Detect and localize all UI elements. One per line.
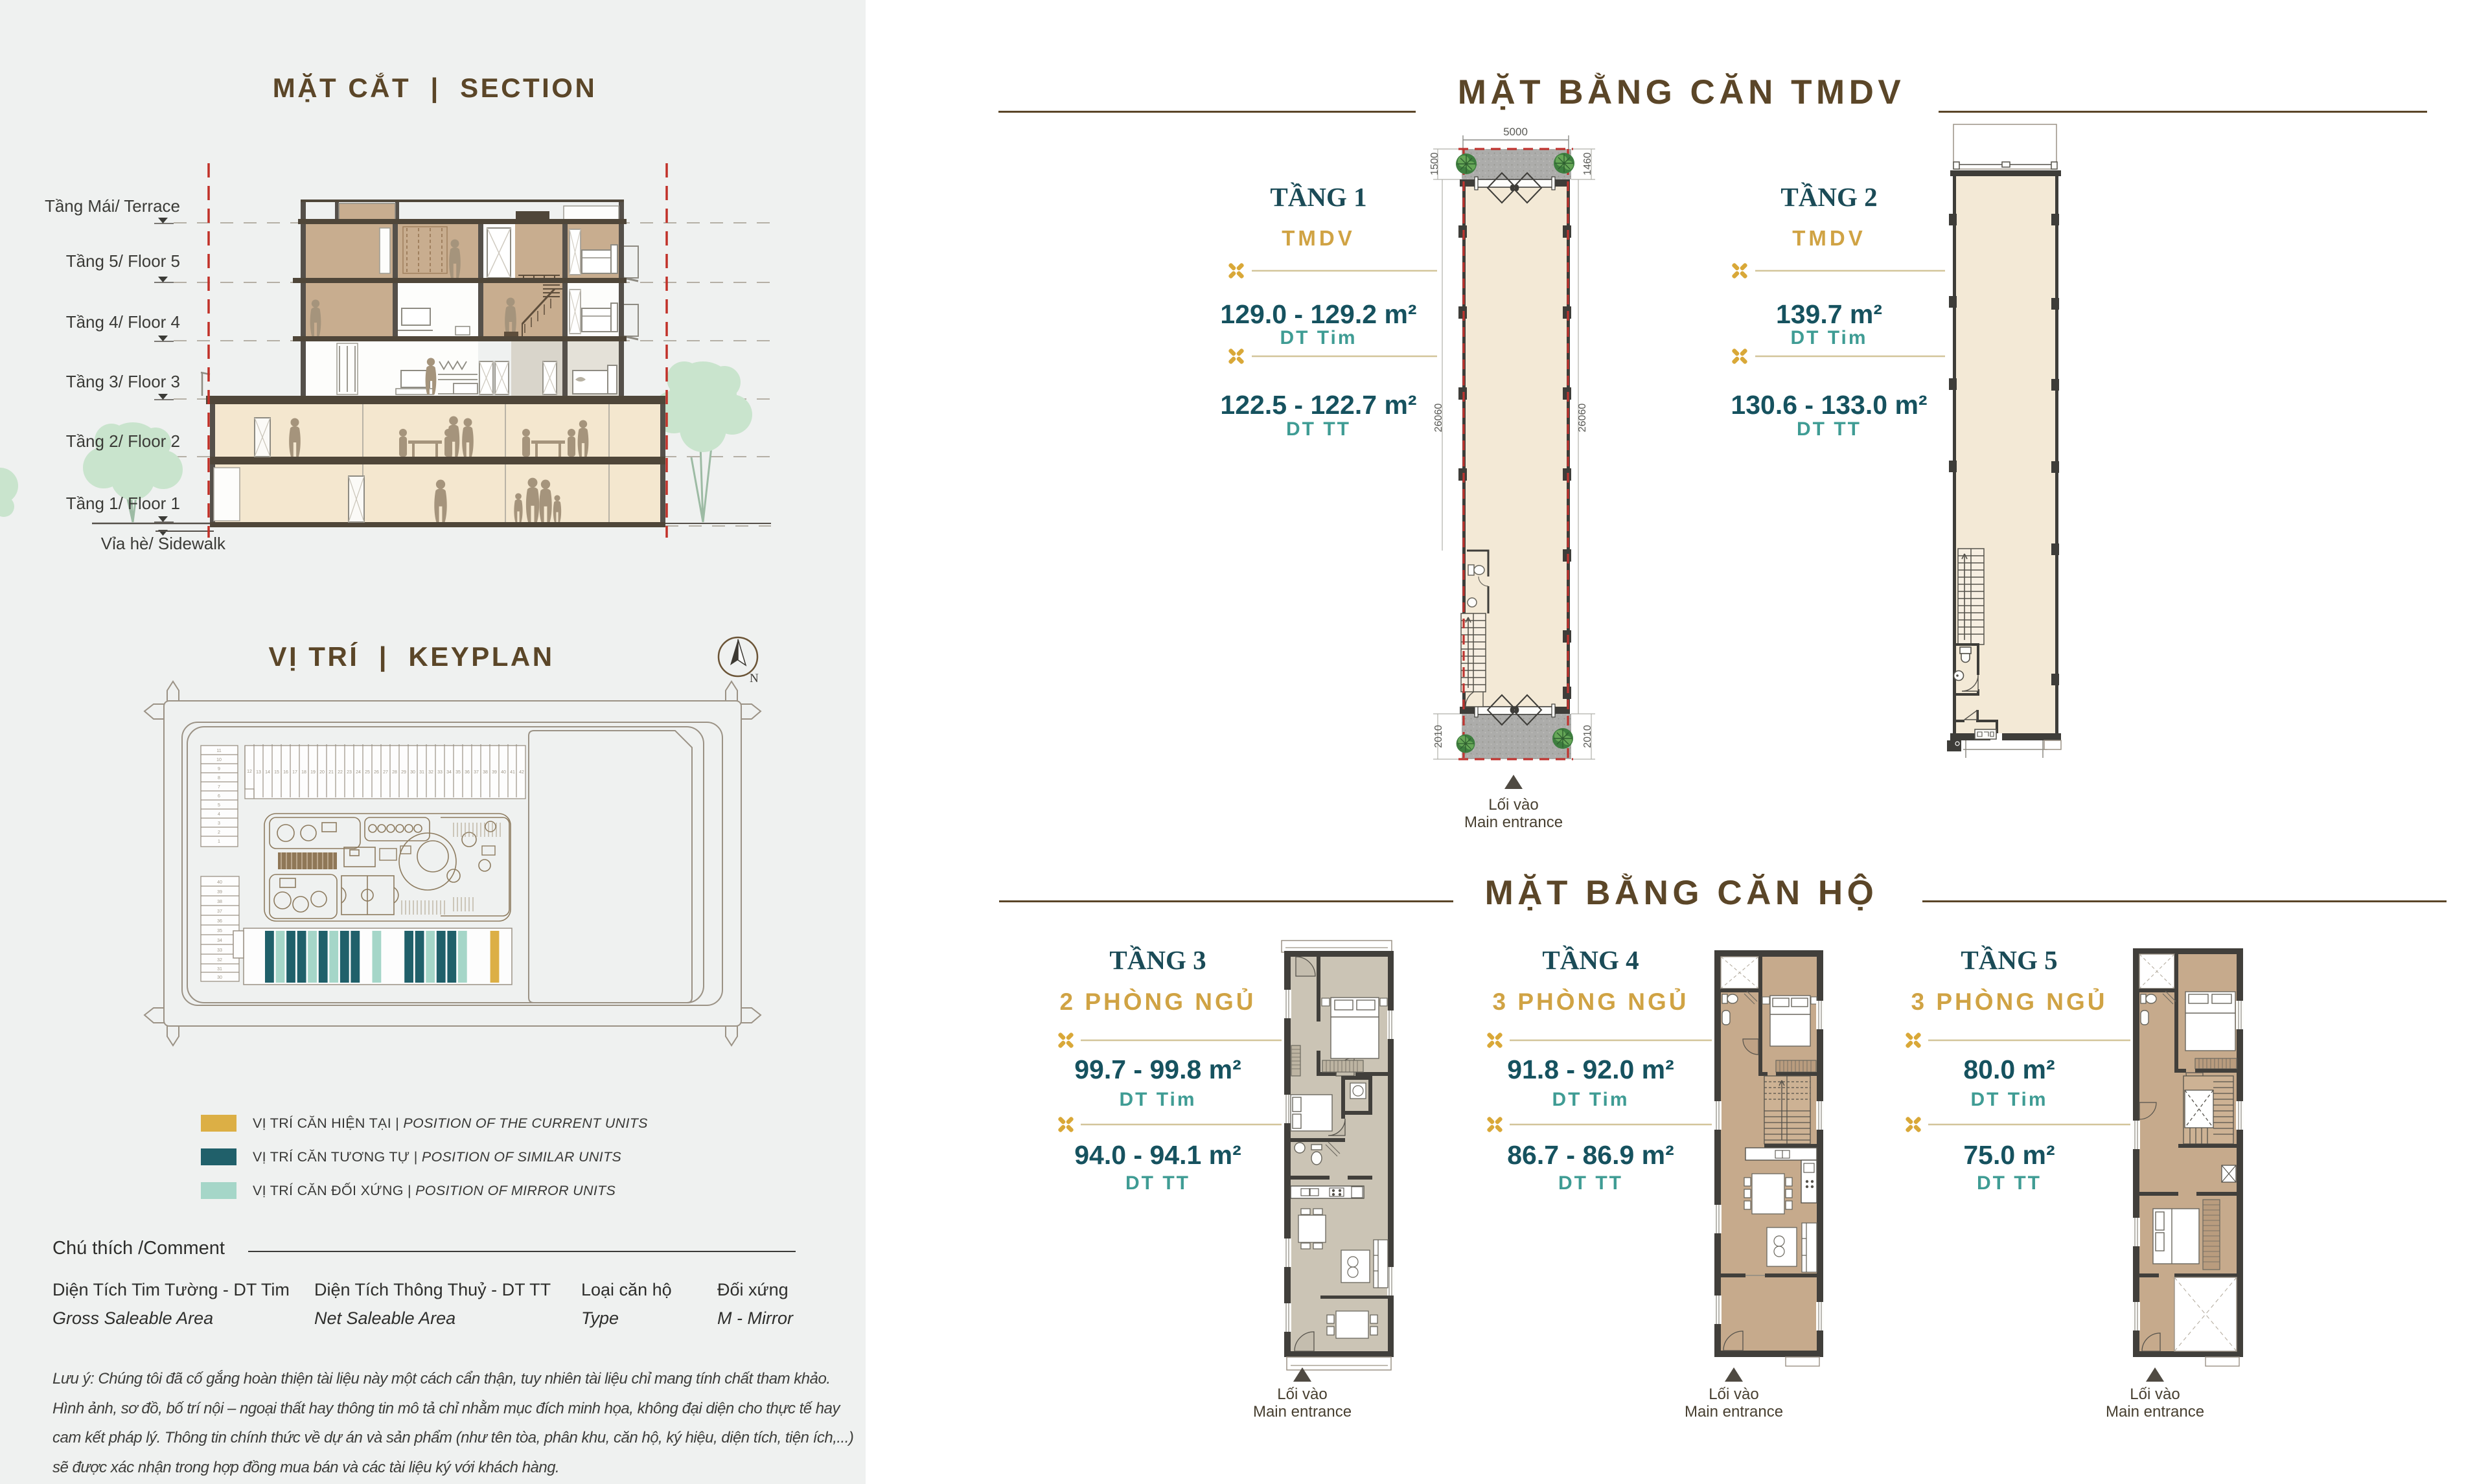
svg-text:38: 38: [217, 900, 222, 904]
svg-text:10: 10: [216, 758, 222, 762]
svg-text:8: 8: [218, 776, 220, 781]
svg-text:6: 6: [218, 794, 220, 799]
svg-text:30: 30: [410, 770, 415, 775]
svg-text:40: 40: [501, 770, 506, 775]
svg-text:16: 16: [283, 770, 288, 775]
svg-text:2010: 2010: [1582, 725, 1593, 748]
svg-text:32: 32: [428, 770, 433, 775]
svg-text:23: 23: [347, 770, 352, 775]
svg-text:11: 11: [216, 749, 221, 753]
svg-text:22: 22: [338, 770, 343, 775]
svg-text:39: 39: [492, 770, 497, 775]
svg-text:14: 14: [265, 770, 270, 775]
svg-text:9: 9: [218, 767, 220, 771]
svg-text:30: 30: [217, 976, 222, 980]
svg-text:36: 36: [217, 919, 222, 924]
svg-text:33: 33: [437, 770, 443, 775]
svg-text:1: 1: [218, 839, 220, 844]
svg-text:33: 33: [217, 948, 222, 953]
svg-text:29: 29: [401, 770, 406, 775]
svg-text:26: 26: [374, 770, 379, 775]
svg-text:38: 38: [483, 770, 488, 775]
svg-text:5000: 5000: [1503, 126, 1528, 138]
svg-text:1460: 1460: [1582, 152, 1593, 176]
svg-text:2010: 2010: [1433, 725, 1444, 748]
svg-text:20: 20: [319, 770, 325, 775]
svg-text:5: 5: [218, 803, 220, 808]
svg-text:37: 37: [217, 909, 222, 914]
svg-text:12: 12: [247, 770, 252, 774]
svg-text:40: 40: [217, 880, 222, 885]
svg-text:7: 7: [218, 785, 220, 790]
svg-text:2: 2: [218, 830, 220, 835]
svg-text:27: 27: [383, 770, 388, 775]
svg-text:39: 39: [217, 890, 222, 895]
svg-text:31: 31: [419, 770, 424, 775]
svg-text:26060: 26060: [1577, 404, 1588, 433]
svg-text:25: 25: [365, 770, 370, 775]
svg-text:37: 37: [474, 770, 479, 775]
svg-text:1500: 1500: [1429, 152, 1440, 176]
svg-text:28: 28: [392, 770, 397, 775]
svg-text:13: 13: [256, 770, 261, 775]
svg-text:35: 35: [217, 929, 222, 933]
svg-text:42: 42: [519, 770, 524, 775]
svg-text:19: 19: [310, 770, 316, 775]
svg-text:31: 31: [217, 967, 222, 972]
svg-text:3: 3: [218, 821, 220, 826]
svg-text:21: 21: [328, 770, 334, 775]
svg-text:24: 24: [356, 770, 361, 775]
svg-text:15: 15: [274, 770, 279, 775]
svg-text:4: 4: [218, 812, 220, 817]
svg-text:17: 17: [292, 770, 297, 775]
svg-text:41: 41: [510, 770, 515, 775]
svg-text:35: 35: [455, 770, 461, 775]
svg-text:34: 34: [446, 770, 452, 775]
svg-text:36: 36: [465, 770, 470, 775]
svg-text:18: 18: [301, 770, 306, 775]
svg-text:34: 34: [217, 939, 222, 943]
svg-text:32: 32: [217, 958, 222, 963]
